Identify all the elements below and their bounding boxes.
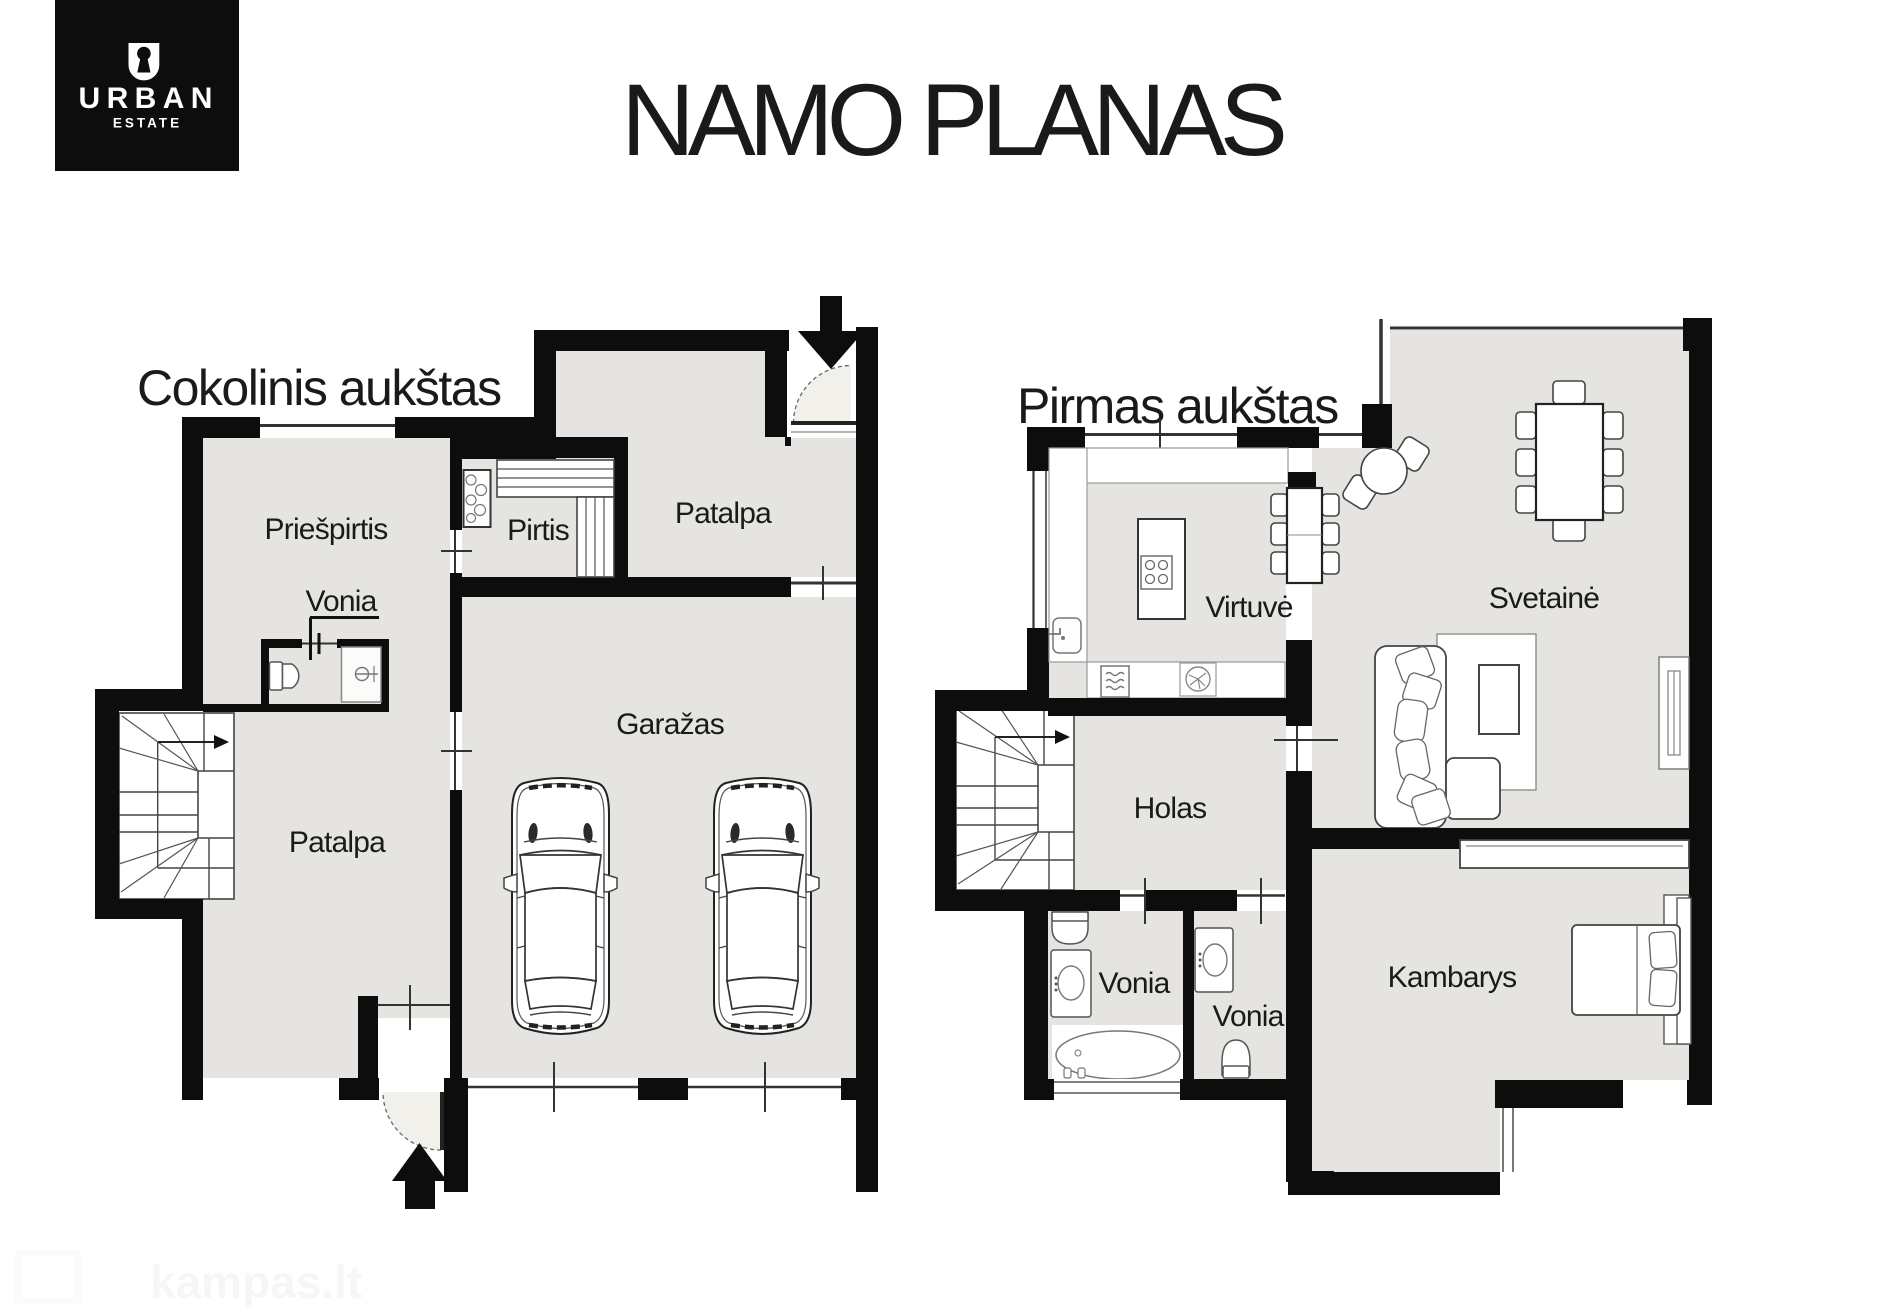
svg-text:URBAN: URBAN bbox=[79, 82, 219, 115]
svg-text:ESTATE: ESTATE bbox=[113, 116, 182, 131]
svg-text:Cokolinis aukštas: Cokolinis aukštas bbox=[137, 360, 501, 416]
svg-text:Garažas: Garažas bbox=[616, 708, 724, 741]
svg-text:Kambarys: Kambarys bbox=[1388, 961, 1517, 994]
svg-text:Virtuvė: Virtuvė bbox=[1205, 591, 1292, 624]
svg-text:Patalpa: Patalpa bbox=[289, 826, 386, 859]
svg-text:Pirmas aukštas: Pirmas aukštas bbox=[1017, 378, 1338, 434]
svg-text:Pirtis: Pirtis bbox=[507, 514, 569, 547]
svg-text:NAMO PLANAS: NAMO PLANAS bbox=[621, 63, 1284, 177]
svg-text:Priešpirtis: Priešpirtis bbox=[265, 513, 388, 546]
svg-text:Vonia: Vonia bbox=[305, 585, 377, 618]
svg-text:kampas.lt: kampas.lt bbox=[150, 1256, 362, 1308]
svg-text:Holas: Holas bbox=[1134, 792, 1207, 825]
svg-text:Vonia: Vonia bbox=[1212, 1000, 1284, 1033]
svg-text:Svetainė: Svetainė bbox=[1489, 582, 1599, 615]
svg-text:Vonia: Vonia bbox=[1098, 967, 1170, 1000]
svg-text:Patalpa: Patalpa bbox=[675, 497, 772, 530]
